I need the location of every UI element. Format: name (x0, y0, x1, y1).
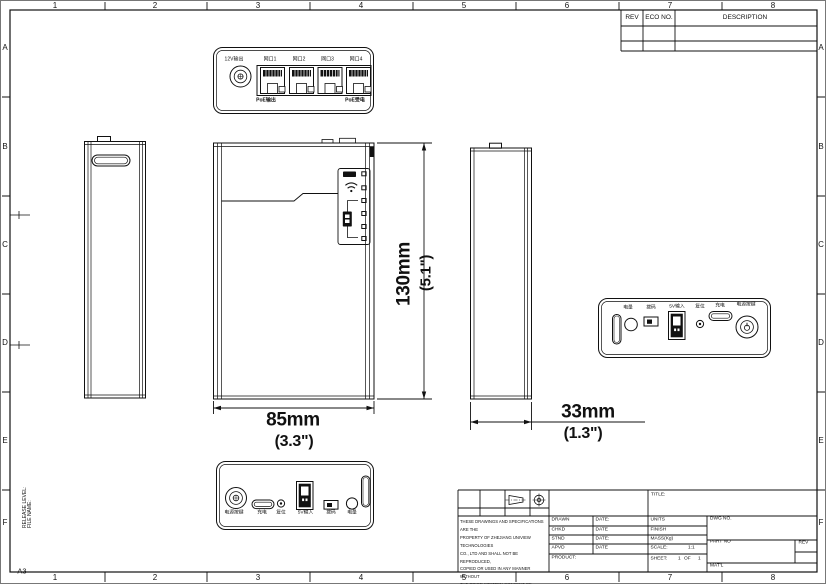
usb-c-port (252, 500, 274, 509)
product-label: PRODUCT: (552, 556, 577, 561)
grid-col-ref: 2 (153, 2, 157, 10)
depth-dim-inch: (1.3") (564, 426, 603, 442)
scale-value: 1:1 (688, 547, 695, 552)
usb-a-label: 5V输入 (298, 512, 313, 517)
port-label-1: 网口1 (264, 58, 277, 63)
fold-marks (10, 211, 30, 349)
vent-slot (613, 315, 622, 345)
depth-dim-mm: 33mm (561, 403, 615, 422)
left-side-view (85, 137, 146, 399)
usb-a-port (297, 482, 314, 510)
usb-a-port (669, 312, 686, 340)
grid-row-ref: D (818, 339, 824, 347)
battery-indicator (346, 498, 357, 509)
dc-jack-icon (230, 66, 251, 87)
projection-symbol-cone (506, 496, 527, 505)
grid-col-ref: 3 (256, 2, 260, 10)
top-bump (98, 137, 111, 142)
vent-slot (362, 476, 371, 507)
dc-jack-label: 12V输出 (225, 58, 244, 63)
rj45-port-4 (347, 68, 372, 94)
usb-c-port (709, 312, 732, 321)
units-label: UNITS (651, 519, 665, 524)
reset-hole (696, 320, 703, 327)
property-notice: THESE DRAWINGS AND SPECIFICATIONS ARE TH… (460, 518, 547, 584)
grid-row-ref: B (818, 143, 823, 151)
rev-table-header-description: DESCRIPTION (723, 14, 767, 21)
dwg-no-label: DWG NO. (710, 517, 732, 522)
port-label-4: 网口4 (350, 58, 363, 63)
height-dim-mm: 130mm (395, 242, 414, 306)
switch-label: 拨码 (646, 307, 656, 312)
apvd-label: APVD (552, 547, 565, 552)
notice-line: CO., LTD AND SHALL NOT BE REPRODUCED, (460, 550, 547, 566)
reset-label: 复位 (695, 306, 705, 311)
power-button-label: 电源按键 (224, 512, 243, 517)
grid-col-ref: 3 (256, 574, 260, 582)
power-button (736, 316, 758, 338)
sheet-label: SHEET: (651, 557, 668, 562)
of-label: OF (684, 557, 691, 562)
rev-table-header-rev: REV (625, 14, 638, 21)
rj45-port-1 (261, 68, 286, 94)
side-handle-slot (92, 155, 130, 166)
usb-connector-icon (343, 212, 352, 227)
poe-in-label: PoE受电 (345, 98, 365, 103)
dip-switch (644, 317, 658, 326)
power-button-label: 电源按键 (736, 304, 755, 309)
grid-col-ref: 7 (668, 574, 672, 582)
engineering-drawing-sheet: 1 2 3 4 5 6 7 8 1 2 3 4 5 6 7 8 A B C D … (0, 0, 826, 584)
reset-hole (277, 500, 284, 507)
usb-a-label: 5V输入 (669, 305, 684, 310)
top-bump (340, 138, 356, 143)
grid-col-ref: 4 (359, 2, 363, 10)
port-label-3: 网口3 (321, 58, 334, 63)
sheet-no: 1 (678, 557, 681, 562)
title-label: TITLE: (651, 493, 665, 498)
grid-col-ref: 1 (53, 574, 57, 582)
rj45-port-2 (290, 68, 315, 94)
cover-parting-line (222, 194, 339, 202)
front-view (214, 138, 375, 399)
grid-col-ref: 1 (53, 2, 57, 10)
grid-col-ref: 2 (153, 574, 157, 582)
dip-switch (324, 501, 338, 510)
grid-col-ref: 8 (771, 574, 775, 582)
part-no-label: PART NO (710, 541, 731, 546)
usb-c-label: 充电 (715, 304, 725, 309)
sheet-total: 1 (698, 557, 701, 562)
wifi-icon (345, 183, 357, 192)
grid-col-ref: 4 (359, 574, 363, 582)
drawn-label: DRAWN (552, 519, 570, 524)
top-bump (322, 140, 333, 144)
stnd-label: STND (552, 537, 565, 542)
side-button (370, 147, 374, 157)
depth-dimension (471, 402, 646, 430)
grid-row-ref: F (3, 519, 8, 527)
grid-row-ref: B (2, 143, 7, 151)
port-label-2: 网口2 (293, 58, 306, 63)
grid-col-ref: 6 (565, 2, 569, 10)
notice-line: THESE DRAWINGS AND SPECIFICATIONS ARE TH… (460, 518, 547, 534)
grid-row-ref: E (2, 437, 7, 445)
width-dim-inch: (3.3") (275, 434, 314, 450)
drawn-date-label: DATE: (596, 519, 610, 524)
grid-col-ref: 7 (668, 2, 672, 10)
right-side-view (471, 143, 532, 399)
top-bump (490, 143, 502, 148)
width-dim-mm: 85mm (266, 411, 320, 430)
battery-label: 电量 (347, 512, 357, 517)
notice-line: PROPERTY OF ZHEJIANG UNIVIEW TECHNOLOGIE… (460, 534, 547, 550)
bottom-view (217, 462, 374, 530)
power-button (226, 488, 247, 509)
grid-row-ref: F (819, 519, 824, 527)
rev-label: REV (799, 541, 809, 546)
file-name-label: FILE NAME: (28, 487, 33, 528)
stnd-date-label: DATE: (596, 537, 610, 542)
grid-row-ref: E (818, 437, 823, 445)
battery-label: 电量 (623, 307, 633, 312)
height-dim-inch: (5.1") (419, 255, 434, 291)
mass-label: MASS(Kg) (651, 537, 674, 542)
projection-symbol-target (533, 494, 546, 507)
chkd-date-label: DATE (596, 528, 608, 533)
brand-logo-mark (343, 172, 356, 178)
poe-out-label: PoE输出 (256, 98, 276, 103)
grid-col-ref: 8 (771, 2, 775, 10)
finish-label: FINISH (651, 528, 667, 533)
grid-row-ref: C (818, 241, 824, 249)
scale-label: SCALE: (651, 547, 668, 552)
battery-indicator (625, 318, 638, 331)
grid-col-ref: 5 (462, 2, 466, 10)
notice-line: COPIED OR USED IN ANY MANNER WITHOUT (460, 565, 547, 581)
reset-label: 复位 (276, 512, 286, 517)
apvd-date-label: DATE (596, 547, 608, 552)
sheet-size-label: A3 (17, 567, 26, 575)
grid-row-ref: A (818, 44, 823, 52)
grid-col-ref: 6 (565, 574, 569, 582)
rj45-port-3 (318, 68, 343, 94)
grid-row-ref: A (2, 44, 7, 52)
grid-row-ref: C (2, 241, 8, 249)
switch-label: 拨码 (326, 512, 336, 517)
grid-row-ref: D (2, 339, 8, 347)
usb-c-label: 充电 (257, 512, 267, 517)
rev-table-header-eco: ECO NO. (645, 14, 672, 21)
matl-label: MAT'L (710, 564, 723, 569)
chkd-label: CHKD (552, 528, 566, 533)
